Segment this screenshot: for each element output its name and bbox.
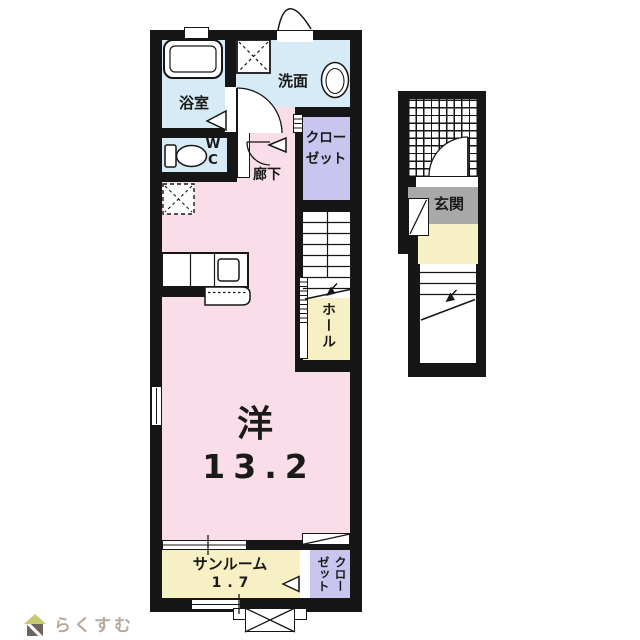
hall-opening [299, 322, 308, 359]
sunroom-closet-door-gap [300, 550, 310, 598]
label-closet-lower: クロー ゼット [312, 551, 348, 597]
entrance-tile-porch-icon [408, 99, 478, 177]
ac-outdoor-unit-icon [245, 608, 295, 632]
label-sunroom-size: 1.7 [164, 575, 296, 591]
house-logo-icon [24, 612, 46, 636]
top-door-gap [277, 31, 313, 42]
label-hall: ホール [318, 302, 338, 358]
entrance-threshold [416, 177, 478, 187]
stairwell-1f [420, 264, 476, 363]
label-room-type: 洋 [205, 395, 305, 447]
label-closet-lower-col2: ゼット [314, 551, 331, 597]
label-closet-upper: クロー ゼット [301, 128, 351, 170]
floorplan-canvas: 浴室 洗面 WC クロー ゼット 廊下 ホール 洋 13.2 サンルーム 1.7… [0, 0, 640, 640]
door-swing-icon-top [278, 9, 311, 30]
house-body [27, 624, 43, 636]
window-sunroom-band [162, 540, 247, 550]
label-closet-upper-line1: クロー [301, 128, 351, 149]
label-hallway: 廊下 [243, 164, 291, 184]
label-wc: WC [204, 136, 222, 168]
entrance-wall-notch [398, 254, 408, 377]
window-left-wall [151, 386, 162, 426]
label-sunroom: サンルーム [164, 553, 296, 574]
label-closet-upper-line2: ゼット [301, 149, 351, 170]
stair-rail-hatch [299, 277, 308, 322]
bathroom-door-gap [225, 87, 236, 132]
label-closet-lower-col1: クロー [331, 551, 348, 597]
room-western-13-2 [162, 182, 295, 540]
label-room-size: 13.2 [180, 447, 330, 486]
door-leaf-bottom-right [302, 533, 350, 545]
label-bathroom: 浴室 [164, 92, 224, 113]
room-bathroom [162, 40, 225, 128]
label-entrance: 玄関 [420, 193, 478, 214]
window-top-wall [184, 27, 209, 39]
site-logo: らくすむ [24, 611, 134, 636]
site-logo-text: らくすむ [54, 611, 134, 636]
house-roof [24, 614, 46, 624]
stairwell-2f [303, 212, 350, 300]
label-washroom: 洗面 [263, 70, 323, 91]
